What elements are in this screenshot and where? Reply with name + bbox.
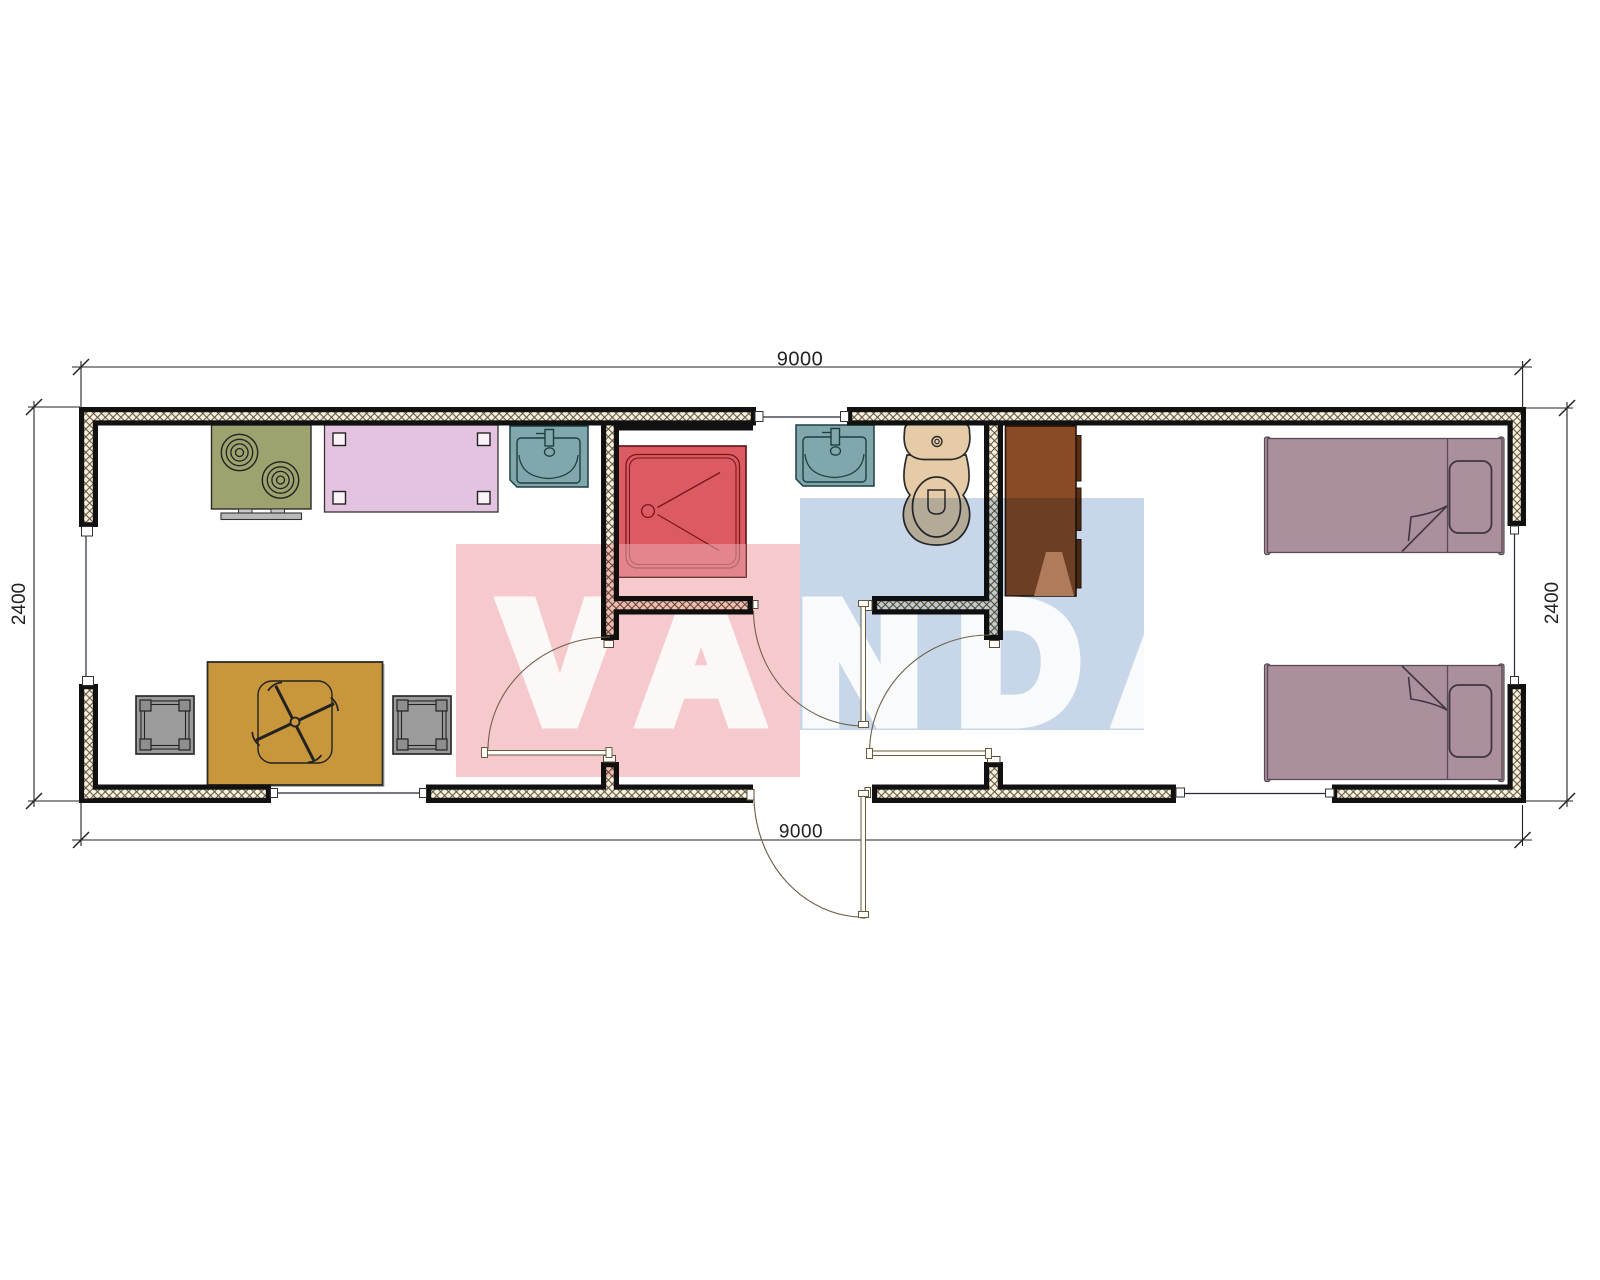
svg-text:2400: 2400 (9, 583, 30, 625)
svg-text:2400: 2400 (1542, 582, 1563, 624)
svg-text:9000: 9000 (777, 349, 824, 371)
svg-text:9000: 9000 (779, 822, 823, 843)
svg-text:VANDA: VANDA (503, 568, 1275, 758)
